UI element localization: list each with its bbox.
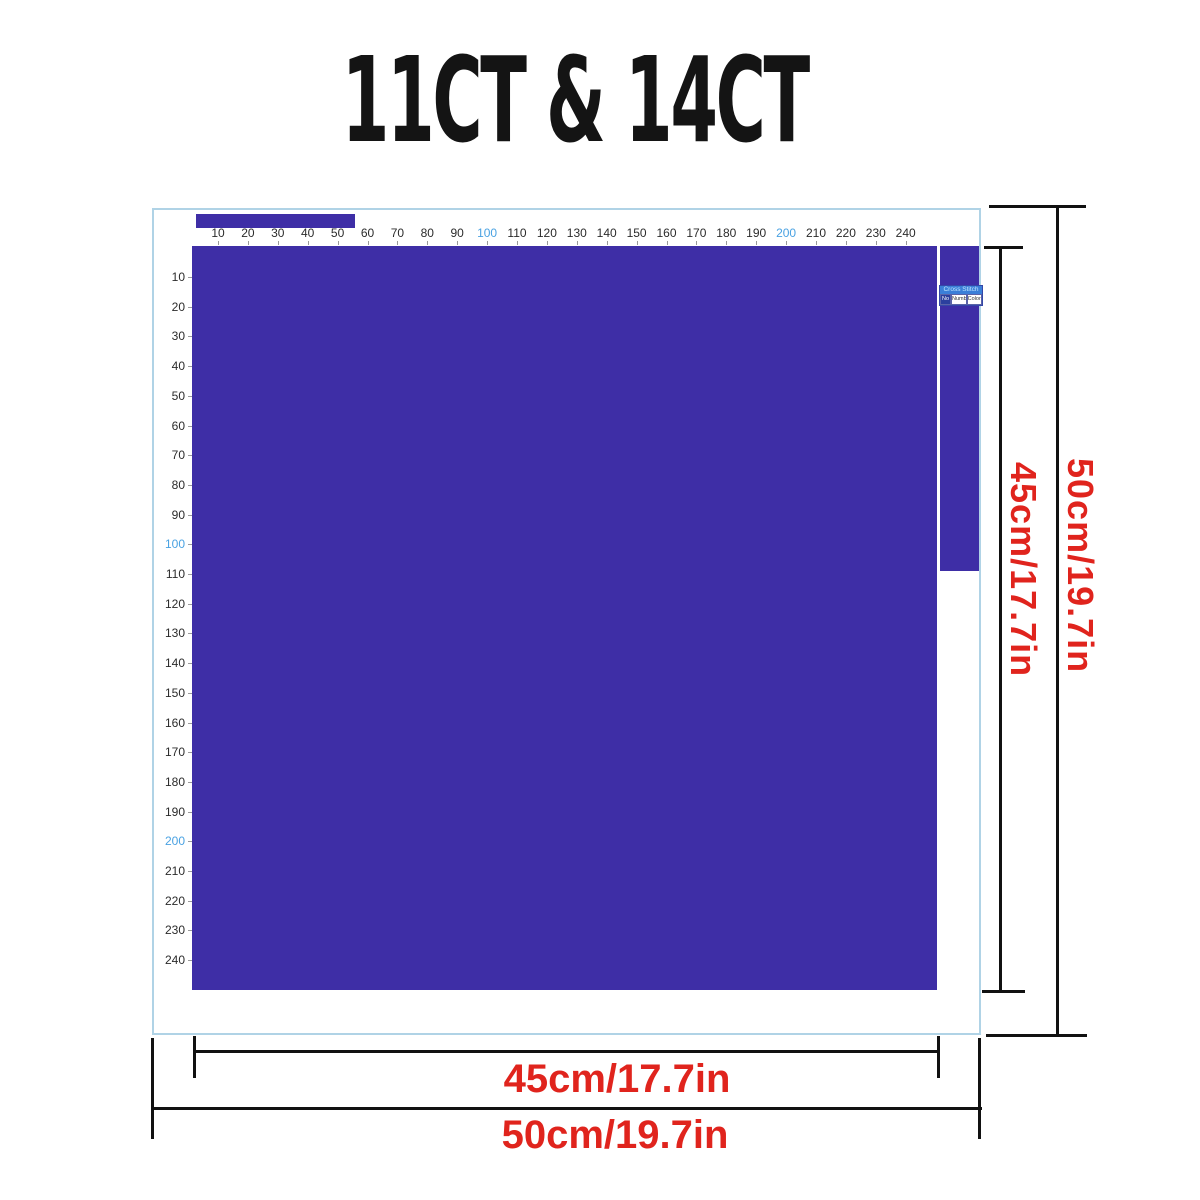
top-ruler-tick — [397, 241, 398, 245]
outer-width-right-tick — [978, 1038, 981, 1139]
top-ruler-tick — [607, 241, 608, 245]
left-ruler-number: 90 — [154, 509, 185, 521]
top-ruler-number: 160 — [656, 227, 676, 240]
top-ruler-tick — [696, 241, 697, 245]
outer-height-top-cap — [989, 205, 1086, 208]
title-wrap: 11CT & 14CT — [0, 36, 1150, 166]
left-ruler-tick — [188, 574, 192, 575]
left-ruler-tick — [188, 277, 192, 278]
top-ruler-number: 50 — [331, 227, 344, 240]
left-ruler-number: 200 — [154, 835, 185, 847]
top-ruler-tick — [637, 241, 638, 245]
top-ruler-tick — [876, 241, 877, 245]
top-ruler-tick — [248, 241, 249, 245]
inner-height-bottom-cap — [982, 990, 1025, 993]
left-ruler-tick — [188, 366, 192, 367]
left-ruler-number: 60 — [154, 420, 185, 432]
legend-column-number: Number — [951, 294, 967, 305]
legend-columns-row: NoNumberColor — [940, 294, 982, 305]
top-ruler-number: 210 — [806, 227, 826, 240]
inner-width-label: 45cm/17.7in — [417, 1057, 817, 1102]
left-ruler-number: 230 — [154, 924, 185, 936]
product-diagram-page: 11CT & 14CT 1020304050607080901001101201… — [0, 0, 1200, 1200]
top-ruler-number: 200 — [776, 227, 796, 240]
top-ruler-number: 100 — [477, 227, 497, 240]
left-ruler-number: 50 — [154, 390, 185, 402]
left-ruler-tick — [188, 633, 192, 634]
page-title: 11CT & 14CT — [342, 36, 808, 166]
left-ruler-number: 70 — [154, 449, 185, 461]
left-ruler-tick — [188, 693, 192, 694]
pattern-chart-box: 1020304050607080901001101201301401501601… — [152, 208, 981, 1035]
top-ruler-number: 140 — [597, 227, 617, 240]
top-ruler-tick — [427, 241, 428, 245]
cross-stitch-legend: Cross Stitch NoNumberColor — [939, 285, 983, 306]
top-ruler-number: 110 — [507, 227, 526, 240]
left-ruler-tick — [188, 307, 192, 308]
top-ruler-tick — [517, 241, 518, 245]
outer-width-left-tick — [151, 1038, 154, 1139]
inner-width-right-tick — [937, 1036, 940, 1078]
left-ruler-number: 120 — [154, 598, 185, 610]
top-ruler-tick — [786, 241, 787, 245]
left-ruler-number: 110 — [154, 568, 185, 580]
left-ruler-tick — [188, 960, 192, 961]
top-ruler-number: 240 — [896, 227, 916, 240]
top-ruler-number: 220 — [836, 227, 856, 240]
left-ruler-number: 140 — [154, 657, 185, 669]
top-ruler-tick — [368, 241, 369, 245]
left-ruler-number: 190 — [154, 806, 185, 818]
left-ruler-number: 160 — [154, 717, 185, 729]
inner-height-top-cap — [984, 246, 1023, 249]
top-ruler-tick — [547, 241, 548, 245]
left-ruler-tick — [188, 782, 192, 783]
outer-height-label: 50cm/19.7in — [1059, 458, 1101, 673]
left-ruler-number: 80 — [154, 479, 185, 491]
left-ruler-tick — [188, 723, 192, 724]
top-ruler-number: 80 — [421, 227, 434, 240]
outer-width-dimension-line — [152, 1107, 982, 1110]
left-ruler-tick — [188, 901, 192, 902]
left-ruler-number: 240 — [154, 954, 185, 966]
top-ruler-tick — [338, 241, 339, 245]
left-ruler-number: 220 — [154, 895, 185, 907]
fabric-pattern-area — [192, 246, 937, 990]
top-ruler-tick — [726, 241, 727, 245]
left-ruler-number: 30 — [154, 330, 185, 342]
left-ruler-tick — [188, 812, 192, 813]
left-ruler: 1020304050607080901001101201301401501601… — [154, 210, 185, 1033]
left-ruler-tick — [188, 930, 192, 931]
top-ruler-number: 180 — [716, 227, 736, 240]
left-ruler-number: 20 — [154, 301, 185, 313]
top-ruler-number: 130 — [567, 227, 587, 240]
left-ruler-tick — [188, 841, 192, 842]
inner-width-left-tick — [193, 1036, 196, 1078]
left-ruler-number: 170 — [154, 746, 185, 758]
left-ruler-tick — [188, 752, 192, 753]
top-ruler-tick — [816, 241, 817, 245]
inner-width-dimension-line — [194, 1050, 939, 1053]
top-ruler-number: 150 — [627, 227, 647, 240]
top-ruler-number: 10 — [211, 227, 224, 240]
legend-header: Cross Stitch — [940, 286, 982, 294]
outer-width-label: 50cm/19.7in — [415, 1113, 815, 1158]
outer-height-bottom-cap — [986, 1034, 1087, 1037]
legend-column-no: No — [940, 294, 951, 305]
left-ruler-number: 10 — [154, 271, 185, 283]
top-ruler-number: 190 — [746, 227, 766, 240]
top-ruler-tick — [487, 241, 488, 245]
left-ruler-tick — [188, 485, 192, 486]
top-ruler-tick — [457, 241, 458, 245]
left-ruler-number: 210 — [154, 865, 185, 877]
top-ruler-tick — [577, 241, 578, 245]
left-ruler-tick — [188, 663, 192, 664]
top-ruler-number: 30 — [271, 227, 284, 240]
top-ruler-number: 230 — [866, 227, 886, 240]
left-ruler-tick — [188, 515, 192, 516]
top-ruler-tick — [218, 241, 219, 245]
top-ruler-number: 120 — [537, 227, 557, 240]
left-ruler-tick — [188, 396, 192, 397]
left-ruler-number: 40 — [154, 360, 185, 372]
top-ruler-number: 90 — [451, 227, 464, 240]
top-ruler-tick — [278, 241, 279, 245]
left-ruler-tick — [188, 604, 192, 605]
top-ruler-number: 20 — [241, 227, 254, 240]
legend-column-color: Color — [967, 294, 983, 305]
top-ruler-tick — [756, 241, 757, 245]
left-ruler-number: 130 — [154, 627, 185, 639]
left-ruler-number: 150 — [154, 687, 185, 699]
top-ruler-number: 60 — [361, 227, 374, 240]
top-ruler-number: 170 — [686, 227, 706, 240]
top-ruler-number: 70 — [391, 227, 404, 240]
left-ruler-tick — [188, 455, 192, 456]
left-ruler-tick — [188, 871, 192, 872]
top-ruler-tick — [667, 241, 668, 245]
top-ruler-tick — [846, 241, 847, 245]
left-ruler-tick — [188, 426, 192, 427]
left-ruler-tick — [188, 336, 192, 337]
left-ruler-tick — [188, 544, 192, 545]
top-ruler-tick — [906, 241, 907, 245]
top-ruler-number: 40 — [301, 227, 314, 240]
inner-height-label: 45cm/17.7in — [1002, 462, 1044, 677]
left-ruler-number: 100 — [154, 538, 185, 550]
left-ruler-number: 180 — [154, 776, 185, 788]
top-ruler-tick — [308, 241, 309, 245]
